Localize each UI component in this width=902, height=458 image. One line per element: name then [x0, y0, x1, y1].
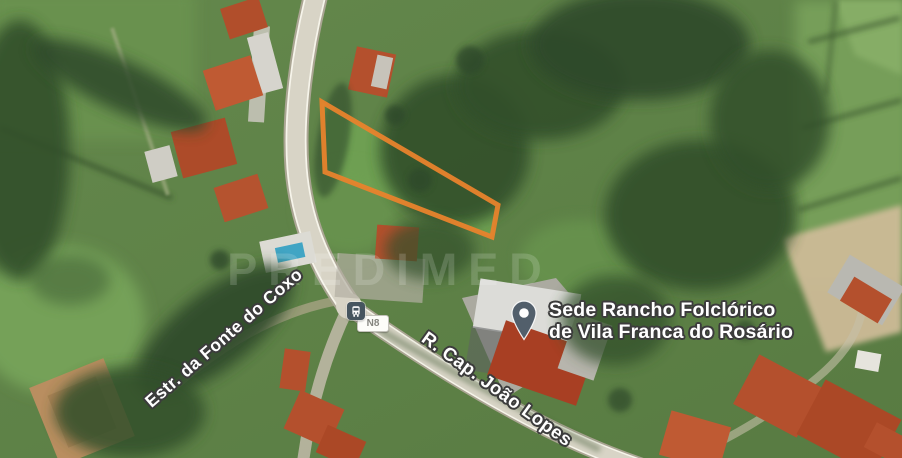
place-pin-icon[interactable] — [509, 300, 539, 341]
watermark: PREDIMED — [130, 244, 650, 296]
road-shield-label: N8 — [367, 318, 380, 329]
terrain-svg — [0, 0, 902, 458]
bus-stop-icon[interactable] — [347, 302, 365, 320]
bus-glyph — [350, 305, 362, 317]
map-canvas[interactable]: PREDIMED Estr. da Fonte do Coxo R. Cap. … — [0, 0, 902, 458]
